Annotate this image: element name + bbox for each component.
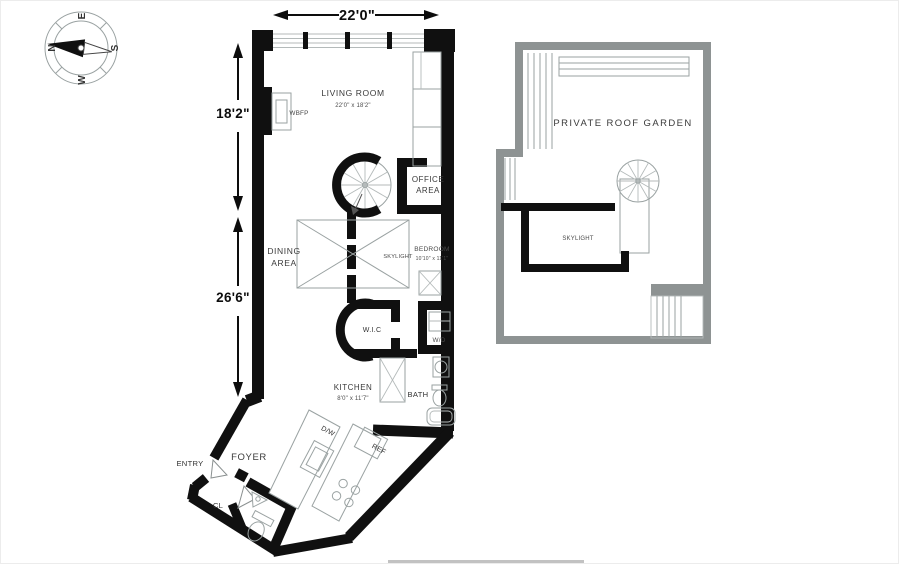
label-kitchen-size: 8'0" x 11'7"	[337, 396, 369, 402]
spiral-staircase-roof	[617, 160, 659, 202]
roof-left-planter	[505, 53, 552, 200]
label-skylight-roof: SKYLIGHT	[562, 236, 593, 242]
label-living-room: LIVING ROOM	[321, 88, 384, 98]
compass-rose: N E S W	[45, 12, 121, 85]
label-wd: W/D	[432, 337, 445, 344]
label-wic: W.I.C	[363, 327, 382, 334]
label-living-room-size: 22'0" x 18'2"	[335, 103, 371, 109]
window-mullion	[303, 32, 308, 49]
compass-n: N	[47, 44, 58, 51]
label-cl: CL	[213, 501, 223, 510]
watermark-strip	[388, 560, 584, 564]
label-skylight-main: SKYLIGHT	[383, 254, 413, 260]
dimension-lower-left: 26'6"	[216, 217, 250, 397]
label-office-area-1: OFFICE	[412, 175, 444, 184]
compass-e: E	[77, 12, 88, 19]
dimension-top: 22'0"	[273, 8, 439, 24]
living-room-closets	[413, 52, 441, 166]
dimension-top-label: 22'0"	[339, 8, 375, 24]
label-dining-area-1: DINING	[267, 246, 300, 256]
label-dining-area-2: AREA	[271, 258, 297, 268]
label-office-area-2: AREA	[416, 186, 440, 195]
window-mullion	[387, 32, 392, 49]
roof-top-planter	[559, 57, 689, 76]
floorplan-page: N E S W 22'0" 18'2" 26'6"	[0, 0, 899, 564]
label-kitchen: KITCHEN	[334, 383, 373, 392]
label-foyer: FOYER	[231, 452, 267, 463]
dimension-upper-left: 18'2"	[216, 43, 250, 211]
compass-w: W	[77, 75, 88, 85]
label-private-roof-garden: PRIVATE ROOF GARDEN	[553, 118, 692, 129]
dimension-lower-left-label: 26'6"	[216, 290, 250, 305]
shower	[380, 358, 405, 402]
spiral-staircase-main	[337, 157, 391, 215]
roof-garden-plan: PRIVATE ROOF GARDEN SKYLIGHT	[500, 46, 707, 340]
label-bath: BATH	[408, 390, 429, 399]
fireplace	[264, 87, 291, 135]
bedroom-closet	[419, 271, 441, 295]
roof-bottom-planter	[651, 284, 707, 338]
label-bedroom-size: 10'10" x 11'1"	[416, 256, 449, 262]
dimension-upper-left-label: 18'2"	[216, 106, 250, 121]
label-wbfp: WBFP	[289, 110, 308, 117]
window-mullion	[345, 32, 350, 49]
label-bedroom: BEDROOM	[414, 246, 449, 253]
entry-door	[211, 460, 227, 478]
roof-stair-landing	[620, 179, 649, 253]
label-entry: ENTRY	[176, 459, 203, 468]
floorplan-drawing: N E S W 22'0" 18'2" 26'6"	[1, 1, 899, 564]
compass-s: S	[110, 44, 121, 51]
